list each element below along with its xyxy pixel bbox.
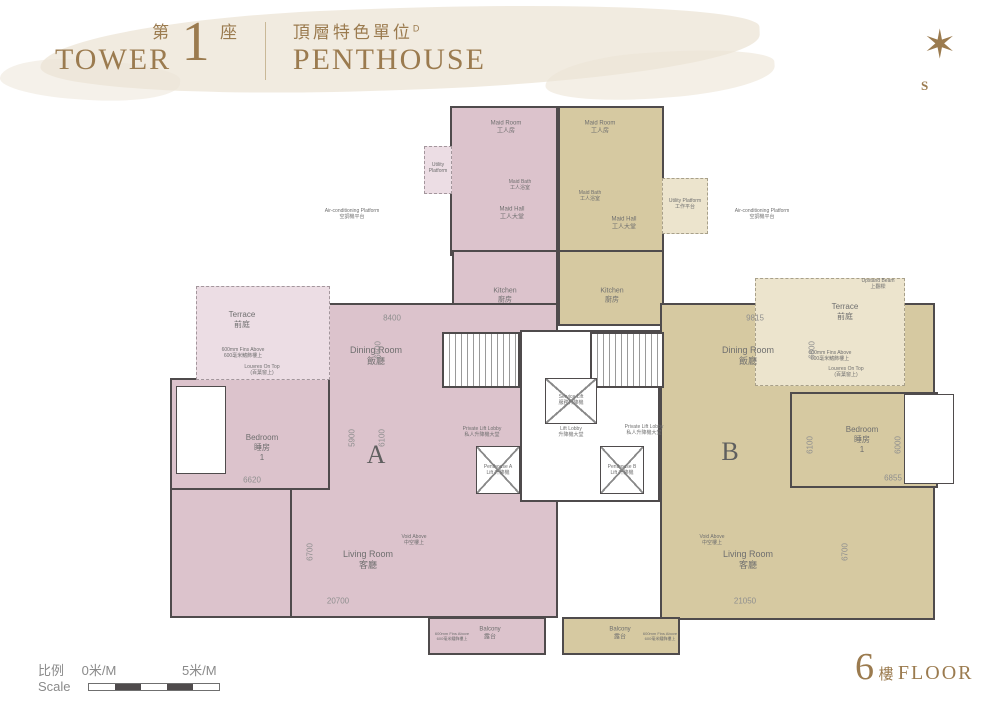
unit-a-left-wing: [170, 488, 292, 618]
scale-seg: [89, 684, 115, 690]
dining-b-label: Dining Room飯廳: [722, 345, 774, 368]
dimension-label: 5900: [348, 429, 357, 447]
fins-above-terrace-a-label: 600mm Fins Above600毫米鰭飾樓上: [222, 347, 265, 360]
balcony-b-label: Balcony露台: [609, 627, 630, 642]
dimension-label: 6600: [374, 341, 383, 359]
penthouse-a-lift-label: Penthouse ALift 升降機: [484, 464, 512, 477]
floor-en: FLOOR: [898, 662, 974, 684]
scale-seg: [141, 684, 167, 690]
maid-bath-b-label: Maid Bath工人浴室: [579, 190, 602, 203]
stair-a: [442, 332, 520, 388]
fins-balcony-b-label: 600mm Fins Above600毫米鰭飾樓上: [643, 631, 677, 641]
dimension-label: 6100: [378, 429, 387, 447]
dimension-label: 21050: [734, 597, 756, 606]
penthouse-b-lift-label: Penthouse BLift 升降機: [608, 464, 637, 477]
ac-platform-right-label: Air-conditioning Platform空調機平台: [735, 208, 789, 221]
dimension-label: 6100: [806, 436, 815, 454]
unit-a-bath: [176, 386, 226, 474]
private-lift-lobby-b-label: Private Lift Lobby私人升降機大堂: [625, 424, 664, 437]
scale-end: 5米/M: [182, 663, 217, 678]
fins-balcony-a-label: 600mm Fins Above600毫米鰭飾樓上: [435, 631, 469, 641]
unit-b-bath: [904, 394, 954, 484]
maid-bath-a-label: Maid Bath工人浴室: [509, 179, 532, 192]
upstand-beam-b-label: Upstand Beam上翻樑: [861, 278, 894, 291]
maid-room-a-label: Maid Room工人房: [491, 121, 522, 136]
scale-seg: [193, 684, 219, 690]
dimension-label: 6620: [243, 476, 261, 485]
dimension-label: 6700: [841, 543, 850, 561]
scale-start: 0米/M: [82, 663, 117, 678]
service-lift-label: Service Lift服務升降機: [558, 394, 583, 407]
dimension-label: 9815: [746, 314, 764, 323]
dimension-label: 20700: [327, 597, 349, 606]
void-above-a-label: Void Above中空樓上: [401, 534, 426, 547]
unit-b-letter: B: [721, 436, 738, 469]
dimension-label: 6700: [306, 543, 315, 561]
louvre-terrace-b-label: Louvres On Top(百葉窗上): [828, 366, 863, 379]
balcony-a-label: Balcony露台: [479, 627, 500, 642]
scale-bar: [88, 683, 220, 691]
dimension-label: 6600: [808, 341, 817, 359]
scale-seg: [115, 684, 141, 690]
scale-zh: 比例: [38, 663, 64, 678]
floor-indicator: 6 樓 FLOOR: [855, 645, 974, 689]
ac-platform-left-label: Air-conditioning Platform空調機平台: [325, 208, 379, 221]
maid-hall-b-label: Maid Hall工人大堂: [611, 217, 636, 232]
maid-room-b-label: Maid Room工人房: [585, 121, 616, 136]
scale-en: Scale: [38, 679, 71, 694]
living-b-label: Living Room客廳: [723, 549, 773, 572]
floor-zh: 樓: [878, 666, 893, 683]
private-lift-lobby-a-label: Private Lift Lobby私人升降機大堂: [463, 426, 502, 439]
louvre-terrace-a-label: Louvres On Top(百葉窗上): [244, 364, 279, 377]
dimension-label: 6855: [884, 474, 902, 483]
utility-platform-a-label: UtilityPlatform: [429, 162, 448, 175]
floor-plan: Maid Room工人房Maid Hall工人大堂Maid Bath工人浴室Ut…: [0, 0, 1000, 704]
dimension-label: 6000: [894, 436, 903, 454]
kitchen-b-label: Kitchen廚房: [600, 287, 623, 305]
floor-number: 6: [855, 646, 874, 688]
stair-b: [590, 332, 664, 388]
bedroom-b-label: Bedroom睡房1: [846, 425, 878, 455]
lift-lobby-label: Lift Lobby升降機大堂: [558, 426, 583, 439]
scale-seg: [167, 684, 193, 690]
living-a-label: Living Room客廳: [343, 549, 393, 572]
maid-hall-a-label: Maid Hall工人大堂: [499, 207, 524, 222]
terrace-a-label: Terrace前庭: [229, 310, 256, 330]
kitchen-a-label: Kitchen廚房: [493, 287, 516, 305]
bedroom-a-label: Bedroom睡房1: [246, 433, 278, 463]
dimension-label: 8400: [383, 314, 401, 323]
void-above-b-label: Void Above中空樓上: [699, 534, 724, 547]
utility-platform-b-label: Utility Platform工作平台: [669, 198, 701, 211]
terrace-b-label: Terrace前庭: [832, 302, 859, 322]
